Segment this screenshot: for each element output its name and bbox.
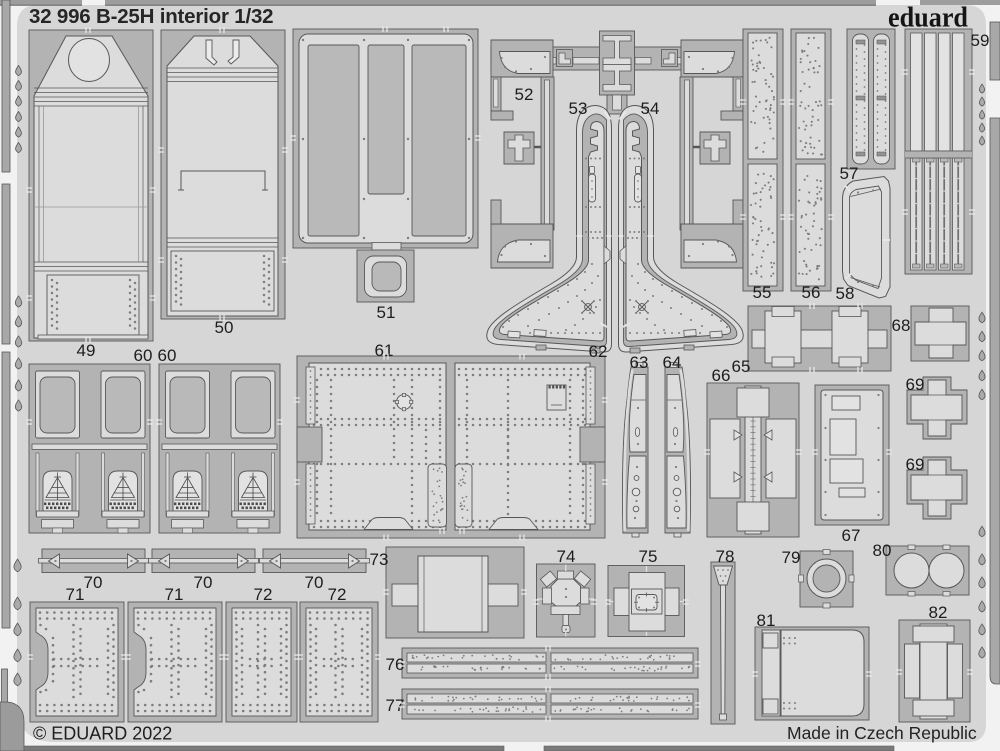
svg-text:71: 71 bbox=[66, 585, 85, 604]
svg-text:73: 73 bbox=[370, 550, 389, 569]
svg-text:79: 79 bbox=[782, 548, 801, 567]
svg-text:51: 51 bbox=[377, 303, 396, 322]
svg-text:77: 77 bbox=[386, 696, 405, 715]
svg-text:56: 56 bbox=[802, 283, 821, 302]
svg-text:72: 72 bbox=[254, 585, 273, 604]
svg-text:59: 59 bbox=[971, 31, 990, 50]
svg-text:80: 80 bbox=[873, 541, 892, 560]
svg-text:55: 55 bbox=[753, 283, 772, 302]
svg-text:75: 75 bbox=[639, 547, 658, 566]
svg-text:70: 70 bbox=[84, 573, 103, 592]
svg-text:32 996 B-25H interior 1/32: 32 996 B-25H interior 1/32 bbox=[29, 5, 273, 28]
svg-text:60: 60 bbox=[158, 346, 177, 365]
svg-text:69: 69 bbox=[906, 375, 925, 394]
svg-text:72: 72 bbox=[328, 585, 347, 604]
svg-text:Made in Czech Republic: Made in Czech Republic bbox=[787, 723, 977, 743]
svg-text:67: 67 bbox=[842, 526, 861, 545]
svg-text:58: 58 bbox=[836, 284, 855, 303]
svg-text:64: 64 bbox=[663, 353, 682, 372]
svg-text:54: 54 bbox=[641, 99, 660, 118]
svg-text:53: 53 bbox=[569, 99, 588, 118]
svg-text:© EDUARD 2022: © EDUARD 2022 bbox=[33, 724, 172, 744]
svg-text:70: 70 bbox=[194, 573, 213, 592]
svg-text:65: 65 bbox=[732, 357, 751, 376]
svg-text:62: 62 bbox=[589, 342, 608, 361]
svg-text:52: 52 bbox=[515, 85, 534, 104]
svg-text:76: 76 bbox=[386, 655, 405, 674]
svg-text:69: 69 bbox=[906, 455, 925, 474]
svg-text:71: 71 bbox=[165, 585, 184, 604]
svg-text:82: 82 bbox=[929, 603, 948, 622]
svg-text:66: 66 bbox=[712, 366, 731, 385]
svg-text:81: 81 bbox=[757, 611, 776, 630]
svg-text:74: 74 bbox=[557, 547, 576, 566]
svg-text:78: 78 bbox=[716, 547, 735, 566]
svg-text:49: 49 bbox=[77, 341, 96, 360]
svg-text:60: 60 bbox=[134, 346, 153, 365]
svg-text:63: 63 bbox=[630, 353, 649, 372]
svg-text:68: 68 bbox=[892, 316, 911, 335]
svg-text:70: 70 bbox=[305, 573, 324, 592]
